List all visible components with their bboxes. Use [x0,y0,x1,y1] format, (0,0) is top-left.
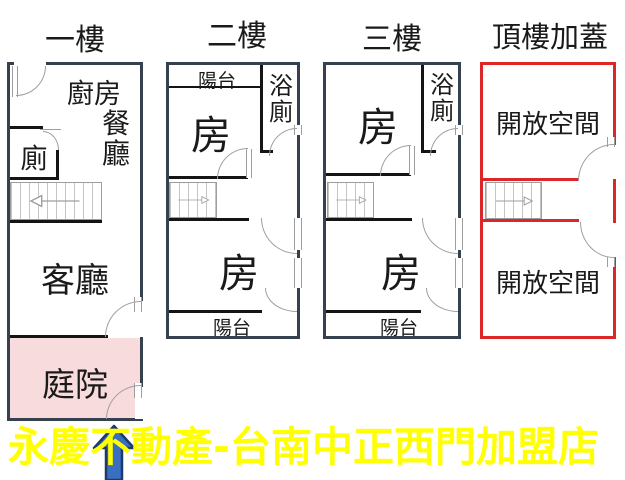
floorplan-first-floor: 廚房 餐廳 廁 客廳 庭院 [7,62,143,421]
roof-partition-upper [483,178,579,181]
stairs [485,182,542,219]
door-arc [261,218,297,254]
label-balcony-bottom: 陽台 [211,313,253,340]
roof-partition-lower [483,219,579,222]
floorplan-third-floor: 浴廁 房 房 陽台 [323,62,461,339]
stair-landing-wall [10,220,102,223]
stairs [327,182,374,218]
title-rooftop: 頂樓加蓋 [486,14,614,56]
toilet-wall-right [56,150,59,180]
stair-landing-wall [326,218,412,221]
stairs [169,182,217,218]
door-jamb [455,258,463,288]
stairs [10,182,102,220]
door-arc [580,222,614,258]
label-room-upper: 房 [354,95,402,153]
stair-arrow-right-icon [175,191,211,209]
door-jamb [607,257,615,267]
label-bath: 浴廁 [429,73,455,125]
door-arc [422,218,458,254]
bath-wall [260,65,263,153]
door-arc [16,66,46,96]
title-first-floor: 一樓 [30,15,120,59]
courtyard-divider-wall [10,335,108,338]
label-balcony-bottom: 陽台 [378,313,420,340]
door-jamb [294,258,302,288]
stair-arrow-right-icon [333,191,368,209]
label-room-lower: 房 [215,241,263,299]
label-kitchen: 廚房 [63,72,125,111]
title-third-floor: 三樓 [347,14,437,58]
floorplan-canvas: 一樓 二樓 三樓 頂樓加蓋 廚房 餐廳 廁 客廳 [0,0,625,480]
door-arc [265,288,297,312]
bath-wall [421,65,424,153]
stair-arrow-left-icon [21,192,91,210]
label-room-upper: 房 [187,103,235,161]
door-arc [430,128,458,156]
label-courtyard: 庭院 [32,358,118,406]
label-open-space-lower: 開放空間 [494,263,602,300]
stair-arrow-right-icon [492,192,535,210]
door-arc [426,288,458,312]
label-dining: 餐廳 [101,109,131,169]
door-arc [269,128,297,156]
stair-landing-wall [169,218,249,221]
floorplan-second-floor: 陽台 浴廁 房 房 陽台 [166,62,300,339]
door-arc [578,144,614,181]
brand-banner: 永慶不動產-台南中正西門加盟店 [8,423,620,475]
toilet-door-header [40,129,61,130]
label-toilet: 廁 [19,137,49,176]
door-arc [105,301,141,337]
label-balcony-top: 陽台 [196,66,238,93]
label-open-space-upper: 開放空間 [494,104,602,141]
label-living-room: 客廳 [32,253,118,302]
toilet-wall-bottom [10,177,59,180]
toilet-wall-top [10,126,43,129]
label-room-lower: 房 [377,241,425,299]
label-bath: 浴廁 [268,74,294,126]
floorplan-rooftop: 開放空間 開放空間 [480,62,616,339]
title-second-floor: 二樓 [190,11,284,55]
